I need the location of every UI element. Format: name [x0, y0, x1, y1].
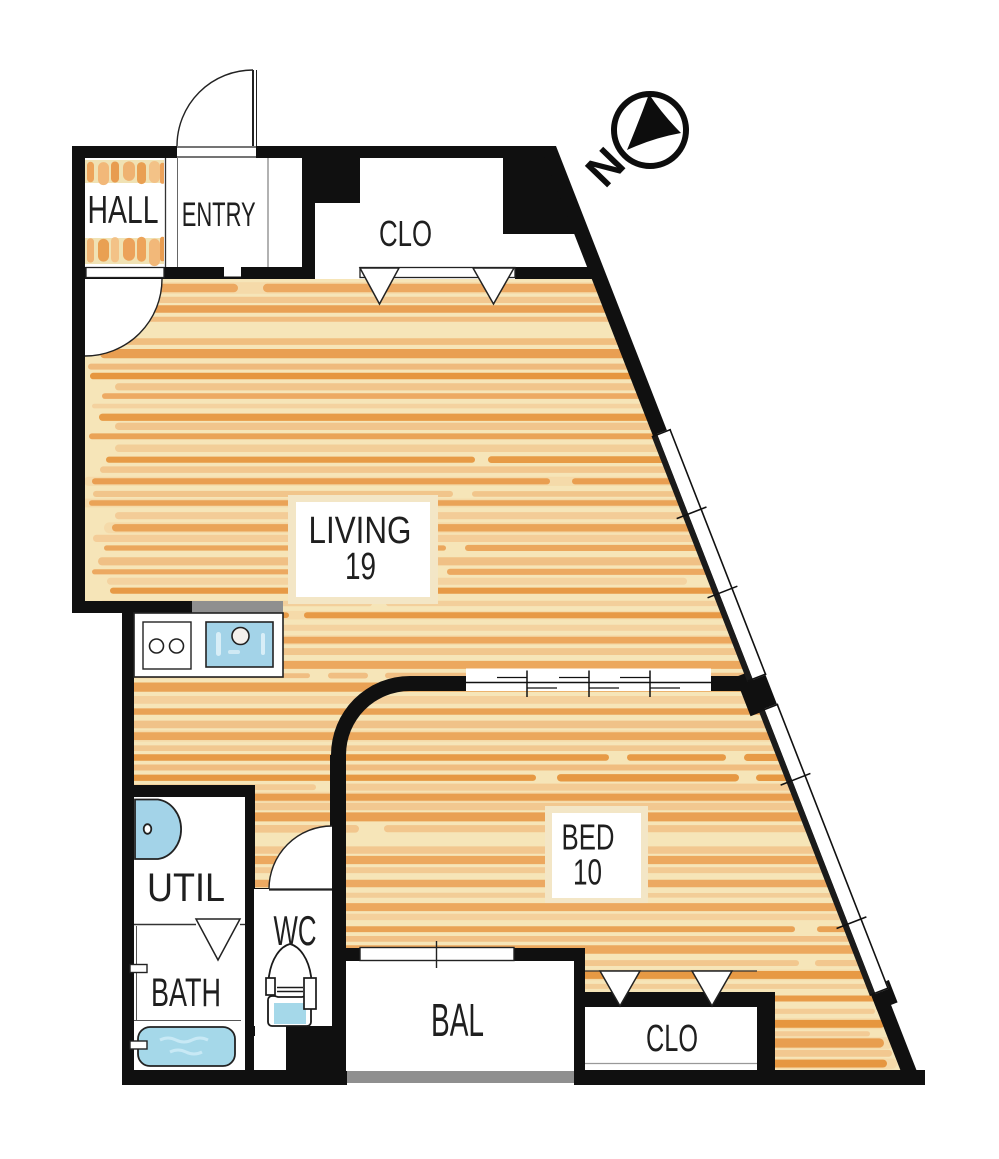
- svg-text:HALL: HALL: [88, 189, 159, 232]
- svg-text:BAL: BAL: [431, 994, 484, 1046]
- svg-text:UTIL: UTIL: [147, 866, 225, 910]
- svg-text:19: 19: [345, 546, 376, 588]
- svg-text:10: 10: [573, 852, 602, 893]
- svg-text:BATH: BATH: [151, 971, 221, 1015]
- svg-text:ENTRY: ENTRY: [182, 196, 256, 234]
- svg-text:CLO: CLO: [379, 213, 432, 254]
- svg-text:CLO: CLO: [646, 1018, 698, 1060]
- svg-text:WC: WC: [274, 907, 317, 954]
